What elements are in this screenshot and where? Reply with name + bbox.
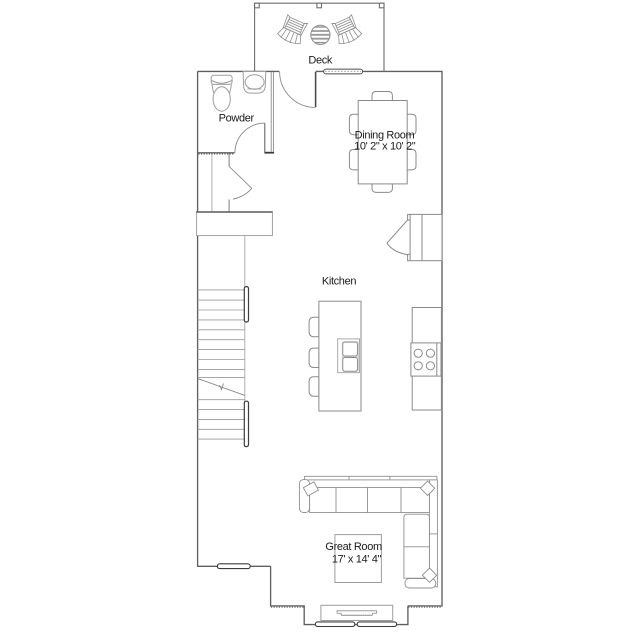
svg-text:Deck: Deck <box>308 55 333 67</box>
svg-text:10' 2" x 10' 2": 10' 2" x 10' 2" <box>354 140 416 152</box>
svg-text:Powder: Powder <box>219 112 255 124</box>
svg-text:Kitchen: Kitchen <box>322 275 356 287</box>
svg-text:Great Room: Great Room <box>325 541 382 553</box>
svg-text:17' x 14' 4": 17' x 14' 4" <box>332 553 382 565</box>
